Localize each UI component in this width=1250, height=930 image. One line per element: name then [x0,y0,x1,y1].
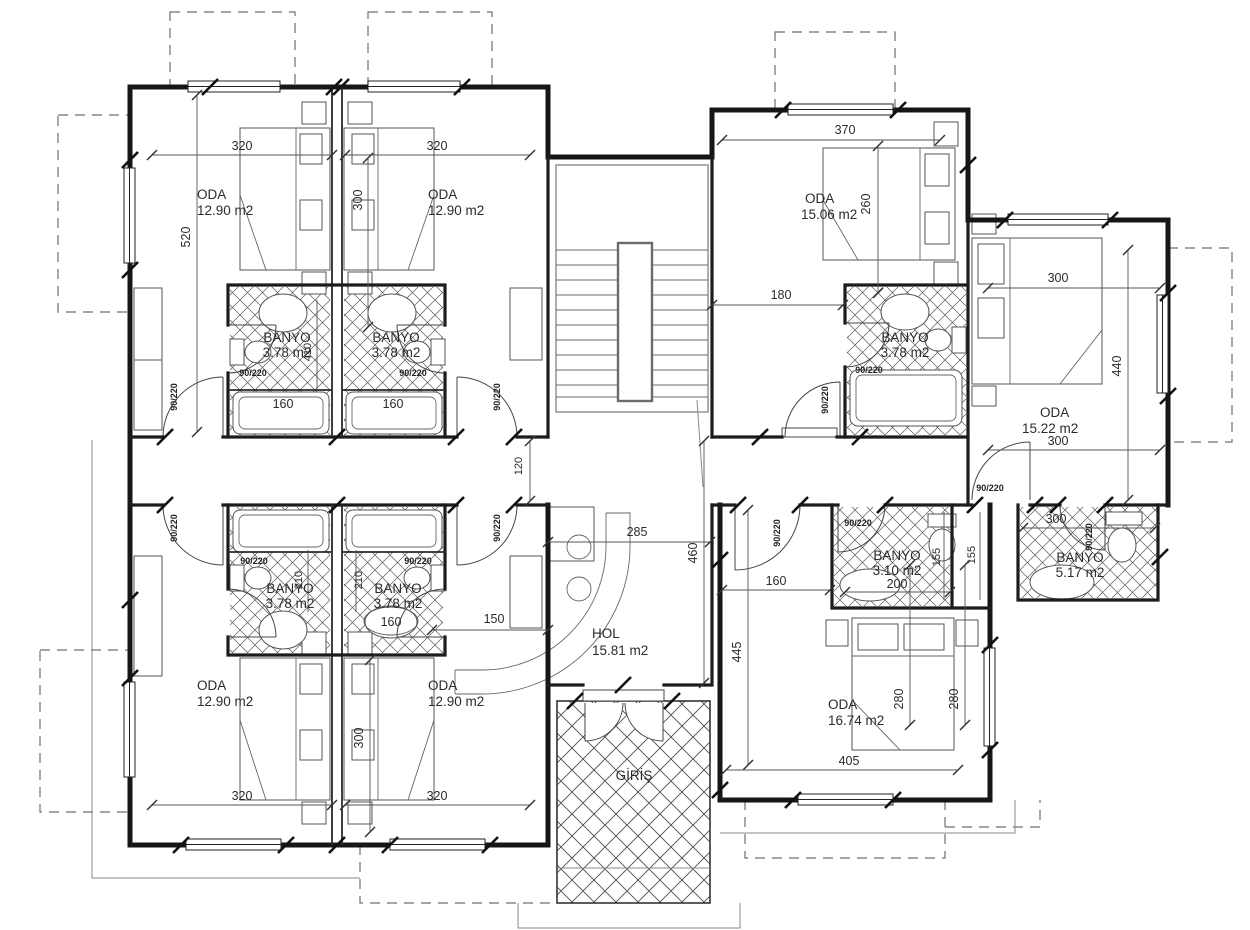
dim-tr-width: 370 [835,123,856,137]
room-label-banyo-tl-right: BANYO [372,330,419,345]
room-label-banyo-bl-right: BANYO [374,581,421,596]
room-label-oda-bl-right: ODA [428,678,457,693]
dim-tr-depth: 260 [859,194,873,215]
floor-plan-drawing: ODA 12.90 m2 ODA 12.90 m2 BANYO 3.78 m2 … [0,0,1250,930]
dim-bl-banyo-right: 210 [353,571,365,589]
room-area-banyo-tl-right: 3.78 m2 [372,345,421,360]
dim-br-bed-a: 280 [892,689,906,710]
wardrobe [510,556,542,628]
window [984,648,995,746]
dim-br-width: 405 [839,754,860,768]
room-label-hol: HOL [592,626,620,641]
dim-tl-banyo-depth: 410 [302,343,314,361]
door-label: 90/220 [169,383,179,411]
bed-tr [823,122,958,286]
room-label-oda-right: ODA [1040,405,1069,420]
room-area-hol: 15.81 m2 [592,643,648,658]
dim-br-hall: 160 [766,574,787,588]
door-label: 90/220 [169,514,179,542]
bed-tl-left [240,102,330,294]
dim-bl-right-depth: 300 [352,728,366,749]
party-walls [332,87,342,845]
dim-tl-right-depth: 300 [351,190,365,211]
door-label: 90/220 [239,368,267,378]
door-label: 90/220 [820,386,830,414]
dim-bl-banyo-left: 210 [293,571,305,589]
door-label: 90/220 [404,556,432,566]
room-label-banyo-tl-left: BANYO [263,330,310,345]
dim-tub-tl-left: 160 [273,397,294,411]
room-label-oda-tl-left: ODA [197,187,226,202]
room-label-banyo-br-small: BANYO [873,548,920,563]
floor-plan-page: ODA 12.90 m2 ODA 12.90 m2 BANYO 3.78 m2 … [0,0,1250,930]
window [798,794,893,805]
door-oda-bl-right [457,505,517,565]
bathtub [233,510,329,552]
dim-corridor: 120 [513,457,525,475]
room-area-oda-bl-left: 12.90 m2 [197,694,253,709]
dim-br-banyo-large: 300 [1046,512,1067,526]
room-label-oda-tr: ODA [805,191,834,206]
dim-hol-depth: 460 [686,543,700,564]
entrance-porch [557,690,710,903]
dim-br-banyo-small: 200 [887,577,908,591]
sink [368,294,416,332]
door-label: 90/220 [399,368,427,378]
door-label: 90/220 [772,519,782,547]
toilet [925,327,966,353]
dim-r-width-bottom: 300 [1048,434,1069,448]
dim-tl-left-width: 320 [232,139,253,153]
window [1008,214,1108,225]
door-label: 90/220 [976,483,1004,493]
wardrobe [134,556,162,676]
door-label: 90/220 [492,383,502,411]
door-oda-tl-right [457,377,517,437]
dim-br-shaft-a: 155 [931,548,943,566]
window [124,168,135,263]
room-area-oda-tr: 15.06 m2 [801,207,857,222]
room-area-oda-tl-right: 12.90 m2 [428,203,484,218]
dim-tr-hall: 180 [771,288,792,302]
dim-br-bed-b: 280 [947,689,961,710]
sink [881,294,929,330]
dim-tl-left-depth: 520 [179,227,193,248]
window [186,839,281,850]
room-label-oda-br: ODA [828,697,857,712]
room-label-giris: GİRİŞ [616,768,653,783]
stair-landing-core [618,243,652,401]
room-area-banyo-br-small: 3.10 m2 [873,563,922,578]
door-label: 90/220 [492,514,502,542]
window [390,839,485,850]
dim-bl-left-width: 320 [232,789,253,803]
dim-hol-width: 285 [627,525,648,539]
room-label-banyo-tr: BANYO [881,330,928,345]
window [788,104,893,115]
door-label: 90/220 [240,556,268,566]
dim-br-shaft-b: 155 [966,546,978,564]
dim-r-depth: 440 [1110,356,1124,377]
room-area-oda-bl-right: 12.90 m2 [428,694,484,709]
dim-br-depth: 445 [730,642,744,663]
dim-bl-right-width: 320 [427,789,448,803]
wardrobe [134,360,162,430]
bed-bl-left [240,632,330,824]
hol-closet [550,507,594,561]
bed-right [972,214,1102,406]
room-area-oda-tl-left: 12.90 m2 [197,203,253,218]
dim-tl-right-width: 320 [427,139,448,153]
room-area-banyo-tr: 3.78 m2 [881,345,930,360]
exterior-wall-left-bottom [130,87,548,845]
room-area-oda-br: 16.74 m2 [828,713,884,728]
wardrobe [134,288,162,360]
bathtub [346,510,442,552]
room-label-oda-tl-right: ODA [428,187,457,202]
sink [259,611,307,649]
staircase [556,165,708,487]
dim-bl-tub: 160 [381,615,402,629]
door-label: 90/220 [844,518,872,528]
room-label-oda-bl-left: ODA [197,678,226,693]
dim-r-width-top: 300 [1048,271,1069,285]
dim-150: 150 [484,612,505,626]
room-area-banyo-bl-left: 3.78 m2 [266,596,315,611]
window [1157,295,1168,393]
bathtub [850,370,962,426]
sink [259,294,307,332]
room-area-banyo-br-large: 5.17 m2 [1056,565,1105,580]
dim-tub-tl-right: 160 [383,397,404,411]
toilet [230,565,271,591]
room-area-banyo-bl-right: 3.78 m2 [374,596,423,611]
door-label: 90/220 [1084,523,1094,551]
room-label-banyo-br-large: BANYO [1056,550,1103,565]
window [124,682,135,777]
room-label-banyo-bl-left: BANYO [266,581,313,596]
window [368,81,460,92]
bed-br [826,618,978,750]
door-tr-hall [782,382,840,437]
door-label: 90/220 [855,365,883,375]
door-oda-br [735,505,800,570]
wardrobe [510,288,542,360]
